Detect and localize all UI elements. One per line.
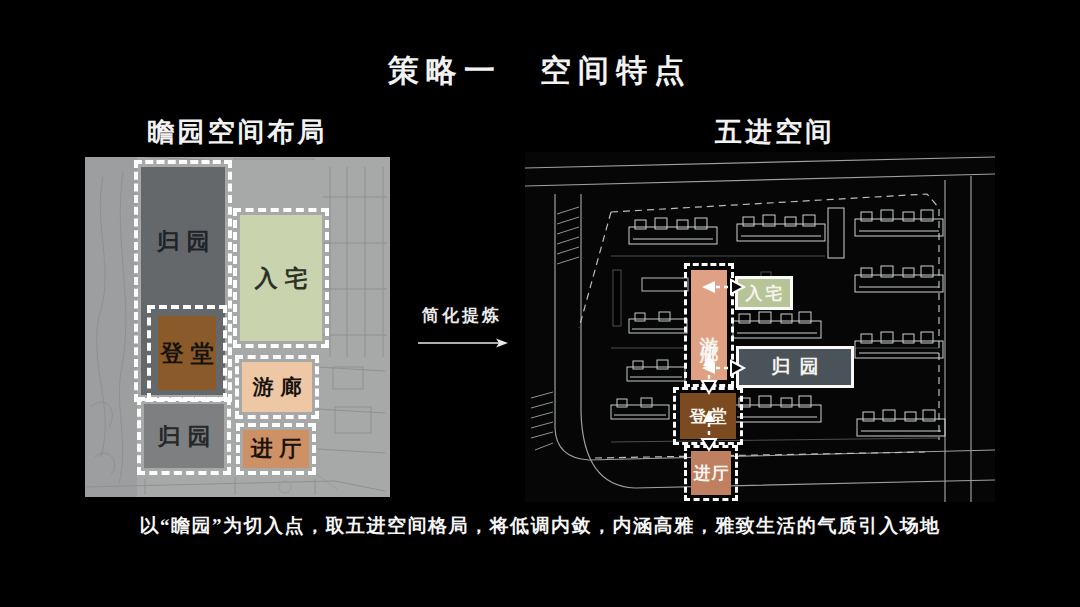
zone-ruzhai-left: 入宅 (233, 208, 329, 348)
zone-guiyuan-right: 归园 (736, 346, 854, 388)
zone-dengtang-left-label: 登堂 (151, 309, 223, 397)
right-plan-title: 五进空间 (540, 114, 1010, 150)
zhanyuan-plan: 归园 归园 登堂 入宅 游廊 进厅 (85, 157, 390, 497)
transition-label: 简化提炼 (422, 306, 502, 325)
zone-youlang-right: 游廊 (691, 270, 727, 380)
zone-jinting-left-label: 进厅 (240, 427, 312, 471)
zone-jinting-right: 进厅 (691, 451, 731, 495)
zone-jinting-left: 进厅 (236, 423, 316, 475)
strategy-slide: 策略一 空间特点 瞻园空间布局 五进空间 (0, 0, 1080, 607)
transition-block: 简化提炼 (410, 304, 514, 349)
site-plan: 游廊 入宅 归园 登堂 进厅 (525, 152, 995, 502)
zone-guiyuan-bottom-label: 归园 (141, 401, 227, 471)
site-plan-drawing (525, 152, 995, 502)
right-arrow-icon (416, 335, 508, 349)
zone-dengtang-right: 登堂 (680, 393, 736, 439)
zone-ruzhai-left-label: 入宅 (237, 212, 325, 344)
zone-youlang-left: 游廊 (235, 355, 319, 419)
zone-ruzhai-right: 入宅 (735, 276, 793, 310)
zone-youlang-left-label: 游廊 (239, 359, 315, 415)
zone-dengtang-left: 登堂 (147, 305, 227, 401)
caption: 以“瞻园”为切入点，取五进空间格局，将低调内敛，内涵高雅，雅致生活的气质引入场地 (0, 513, 1080, 539)
zone-guiyuan-bottom: 归园 (137, 397, 231, 475)
left-plan-title: 瞻园空间布局 (85, 114, 390, 150)
page-title: 策略一 空间特点 (0, 50, 1080, 92)
